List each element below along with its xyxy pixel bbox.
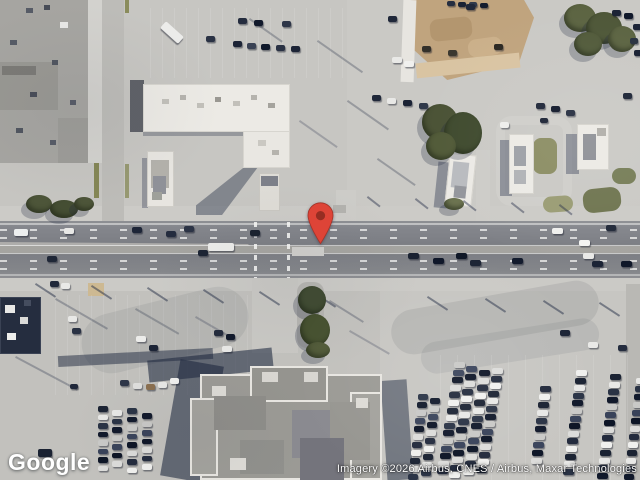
car xyxy=(98,406,108,412)
roof-unit xyxy=(20,317,28,324)
car xyxy=(472,416,483,422)
car xyxy=(566,110,575,116)
roof-unit xyxy=(50,140,56,145)
car xyxy=(64,228,74,234)
car xyxy=(482,429,493,435)
car xyxy=(208,243,234,251)
roof-unit xyxy=(597,128,606,136)
car xyxy=(534,434,545,440)
car xyxy=(444,423,455,429)
car xyxy=(254,20,263,26)
car xyxy=(536,103,545,109)
tree xyxy=(426,132,456,160)
car xyxy=(568,431,579,437)
roof-unit xyxy=(272,150,279,155)
car xyxy=(50,281,59,287)
car xyxy=(574,385,585,391)
car xyxy=(120,380,129,386)
car xyxy=(627,450,637,456)
car xyxy=(461,396,472,402)
car xyxy=(422,46,431,52)
green-strip xyxy=(125,0,129,13)
car xyxy=(467,446,478,452)
median-green xyxy=(582,186,622,214)
car xyxy=(583,253,594,259)
car xyxy=(474,400,485,406)
car xyxy=(492,368,503,374)
car xyxy=(630,38,638,44)
car xyxy=(133,383,142,389)
tree xyxy=(26,195,52,213)
roof-vent-strip xyxy=(2,66,36,75)
roof-unit xyxy=(268,103,275,108)
car xyxy=(601,442,612,448)
car xyxy=(571,408,582,414)
car xyxy=(572,400,583,406)
roof-unit xyxy=(212,386,226,396)
roof-unit xyxy=(26,8,33,13)
car xyxy=(98,449,108,455)
car xyxy=(479,370,490,376)
car xyxy=(464,381,475,387)
tree xyxy=(444,198,464,210)
car xyxy=(486,406,497,412)
car xyxy=(610,374,621,380)
car xyxy=(570,416,581,422)
car xyxy=(184,226,194,232)
car xyxy=(453,450,464,456)
car xyxy=(433,258,444,264)
car xyxy=(575,378,586,384)
tree xyxy=(298,286,326,314)
car xyxy=(494,44,503,50)
car xyxy=(233,41,242,47)
car xyxy=(491,376,502,382)
car xyxy=(630,426,640,432)
pin-body xyxy=(308,203,333,244)
dirt-patch xyxy=(429,16,473,42)
car xyxy=(170,378,179,384)
car xyxy=(127,417,137,423)
roof-unit xyxy=(60,22,68,28)
car xyxy=(70,384,78,389)
car xyxy=(632,410,640,416)
car xyxy=(447,408,458,414)
car xyxy=(419,103,428,109)
roof-unit xyxy=(453,185,466,198)
car xyxy=(72,328,81,334)
car xyxy=(576,370,587,376)
median-green xyxy=(612,168,636,184)
car xyxy=(634,394,640,400)
car xyxy=(455,434,466,440)
car xyxy=(551,106,560,112)
dock-strip xyxy=(88,0,102,163)
car xyxy=(412,442,422,448)
car xyxy=(442,438,453,444)
car xyxy=(588,342,598,348)
car xyxy=(456,253,467,259)
car xyxy=(98,432,108,438)
car xyxy=(112,461,122,467)
roof-patch xyxy=(240,440,284,474)
car xyxy=(427,422,437,428)
bar-shadow xyxy=(143,132,243,136)
car xyxy=(423,454,433,460)
pin-icon xyxy=(307,202,334,245)
roof-unit xyxy=(583,134,596,160)
car xyxy=(460,404,471,410)
car xyxy=(417,402,427,408)
car xyxy=(158,382,167,388)
car xyxy=(470,260,481,266)
car xyxy=(475,393,486,399)
roof-unit xyxy=(52,60,58,65)
car xyxy=(566,446,577,452)
car xyxy=(404,61,414,67)
car xyxy=(198,250,208,256)
car xyxy=(484,421,495,427)
car xyxy=(573,393,584,399)
car xyxy=(98,457,108,463)
roof-unit xyxy=(356,398,368,408)
roof-unit xyxy=(262,372,278,382)
roof-unit xyxy=(10,40,17,45)
car xyxy=(372,95,381,101)
car xyxy=(466,454,477,460)
car xyxy=(462,389,473,395)
car xyxy=(414,426,424,432)
car xyxy=(452,377,463,383)
car xyxy=(426,430,436,436)
car xyxy=(567,438,578,444)
car xyxy=(485,414,496,420)
roof-unit xyxy=(514,170,526,184)
car xyxy=(127,408,137,414)
roof-unit xyxy=(197,103,204,108)
car xyxy=(605,412,616,418)
car xyxy=(454,362,465,368)
car xyxy=(469,431,480,437)
car xyxy=(478,378,489,384)
car xyxy=(424,446,434,452)
car xyxy=(127,425,137,431)
car xyxy=(532,450,543,456)
car xyxy=(458,419,469,425)
car xyxy=(612,10,621,16)
car xyxy=(415,418,425,424)
car xyxy=(430,398,440,404)
car xyxy=(149,345,158,351)
car xyxy=(68,316,77,322)
car xyxy=(488,391,499,397)
car xyxy=(98,466,108,472)
car xyxy=(456,427,467,433)
car xyxy=(500,122,509,128)
roof-unit xyxy=(152,192,162,200)
car xyxy=(392,57,402,63)
car xyxy=(247,43,256,49)
car xyxy=(61,283,70,289)
car xyxy=(250,230,260,236)
roof-unit xyxy=(258,140,266,146)
car xyxy=(560,330,570,336)
roof-dark-strip xyxy=(130,80,144,132)
map-pin[interactable] xyxy=(307,202,334,245)
car xyxy=(603,427,614,433)
car xyxy=(112,444,122,450)
car xyxy=(443,430,454,436)
car xyxy=(387,98,396,104)
car xyxy=(618,345,627,351)
roof-unit xyxy=(5,305,15,313)
tree xyxy=(574,32,602,56)
roof-unit xyxy=(162,99,169,104)
car xyxy=(635,386,640,392)
roof-unit xyxy=(44,5,50,10)
bus-shelter xyxy=(333,205,346,213)
lane-line xyxy=(0,260,640,262)
road-edge xyxy=(0,274,640,276)
car xyxy=(624,13,633,19)
roof-unit xyxy=(230,458,246,470)
car xyxy=(569,423,580,429)
roof-unit xyxy=(70,100,76,105)
car xyxy=(448,400,459,406)
car xyxy=(411,450,421,456)
car xyxy=(142,447,152,453)
car xyxy=(459,412,470,418)
car xyxy=(276,45,285,51)
warehouse-annex xyxy=(58,118,88,163)
car xyxy=(214,330,223,336)
car xyxy=(127,451,137,457)
car xyxy=(127,468,137,474)
roof-unit xyxy=(451,161,470,189)
roof-unit xyxy=(7,333,16,340)
car xyxy=(537,410,548,416)
car xyxy=(621,261,632,267)
car xyxy=(388,16,397,22)
car xyxy=(429,406,439,412)
car xyxy=(604,420,615,426)
car xyxy=(487,398,498,404)
car xyxy=(477,385,488,391)
car xyxy=(533,442,544,448)
car xyxy=(112,410,122,416)
car xyxy=(282,21,291,27)
car xyxy=(142,464,152,470)
car xyxy=(448,50,457,56)
car xyxy=(142,422,152,428)
building-white-bar xyxy=(143,84,290,132)
car xyxy=(291,46,300,52)
entrance-drive xyxy=(252,277,298,353)
car xyxy=(636,378,640,384)
attribution-text: Imagery ©2026 Airbus, CNES / Airbus, Max… xyxy=(337,463,637,475)
car xyxy=(538,402,549,408)
car xyxy=(628,442,638,448)
car xyxy=(142,430,152,436)
car xyxy=(606,225,616,231)
car xyxy=(512,258,523,264)
car xyxy=(132,227,142,233)
car xyxy=(606,404,617,410)
map-canvas[interactable]: Google Imagery ©2026 Airbus, CNES / Airb… xyxy=(0,0,640,480)
car xyxy=(458,2,466,7)
car xyxy=(222,346,232,352)
car xyxy=(98,415,108,421)
car xyxy=(142,456,152,462)
car xyxy=(631,418,640,424)
car xyxy=(47,256,57,262)
car xyxy=(127,434,137,440)
car xyxy=(98,440,108,446)
landscape-green xyxy=(533,138,557,174)
car xyxy=(607,397,618,403)
lane-line xyxy=(0,268,640,270)
tree xyxy=(74,197,94,211)
car xyxy=(127,459,137,465)
crosswalk xyxy=(287,222,290,278)
car xyxy=(466,366,477,372)
car xyxy=(450,385,461,391)
car xyxy=(536,418,547,424)
car xyxy=(473,408,484,414)
car xyxy=(408,253,419,259)
car xyxy=(633,402,640,408)
car xyxy=(535,426,546,432)
car xyxy=(633,24,640,30)
median-pad xyxy=(292,247,324,256)
roof-unit xyxy=(304,372,318,382)
car xyxy=(142,413,152,419)
tree xyxy=(306,342,330,358)
roof-unit xyxy=(251,95,257,100)
roof-unit xyxy=(514,146,526,166)
pin-dot xyxy=(315,211,324,220)
car xyxy=(166,231,176,237)
roof-unit xyxy=(30,92,37,97)
car xyxy=(540,118,548,123)
car xyxy=(481,436,492,442)
car xyxy=(441,446,452,452)
roof-patch xyxy=(214,396,266,430)
car xyxy=(453,370,464,376)
car xyxy=(454,442,465,448)
car xyxy=(468,438,479,444)
building-white-wing xyxy=(243,131,290,168)
car xyxy=(112,419,122,425)
car xyxy=(471,423,482,429)
car xyxy=(112,427,122,433)
car xyxy=(579,240,590,246)
car xyxy=(540,386,551,392)
car xyxy=(146,384,155,390)
car xyxy=(14,229,28,236)
car xyxy=(600,450,611,456)
car xyxy=(592,261,603,267)
car xyxy=(98,423,108,429)
car xyxy=(629,434,639,440)
car xyxy=(539,394,550,400)
car xyxy=(490,383,501,389)
car xyxy=(480,444,491,450)
roof-unit xyxy=(233,101,240,106)
car xyxy=(226,334,235,340)
car xyxy=(446,415,457,421)
car xyxy=(428,414,438,420)
car xyxy=(261,44,270,50)
car xyxy=(623,93,632,99)
car xyxy=(403,100,412,106)
car xyxy=(480,3,488,8)
car xyxy=(413,434,423,440)
car xyxy=(602,435,613,441)
roof-unit xyxy=(24,300,31,306)
car xyxy=(552,228,563,234)
car xyxy=(466,4,475,10)
car xyxy=(425,438,435,444)
car xyxy=(634,50,640,56)
car xyxy=(608,389,619,395)
roof-unit xyxy=(180,95,186,100)
roof-unit xyxy=(215,97,221,102)
car xyxy=(206,36,215,42)
car xyxy=(449,392,460,398)
driveway-right xyxy=(476,150,490,221)
car xyxy=(112,436,122,442)
car xyxy=(136,336,146,342)
google-logo[interactable]: Google xyxy=(8,449,90,476)
car xyxy=(565,454,576,460)
car xyxy=(418,394,428,400)
car xyxy=(479,452,490,458)
roof-unit xyxy=(261,176,278,186)
car xyxy=(465,374,476,380)
green-strip xyxy=(125,164,129,198)
car xyxy=(416,410,426,416)
roof-unit xyxy=(16,128,23,133)
car xyxy=(447,1,455,6)
car xyxy=(127,442,137,448)
car xyxy=(440,453,451,459)
car xyxy=(112,453,122,459)
car xyxy=(238,18,247,24)
street-vertical xyxy=(102,0,124,221)
car xyxy=(609,382,620,388)
car xyxy=(142,439,152,445)
